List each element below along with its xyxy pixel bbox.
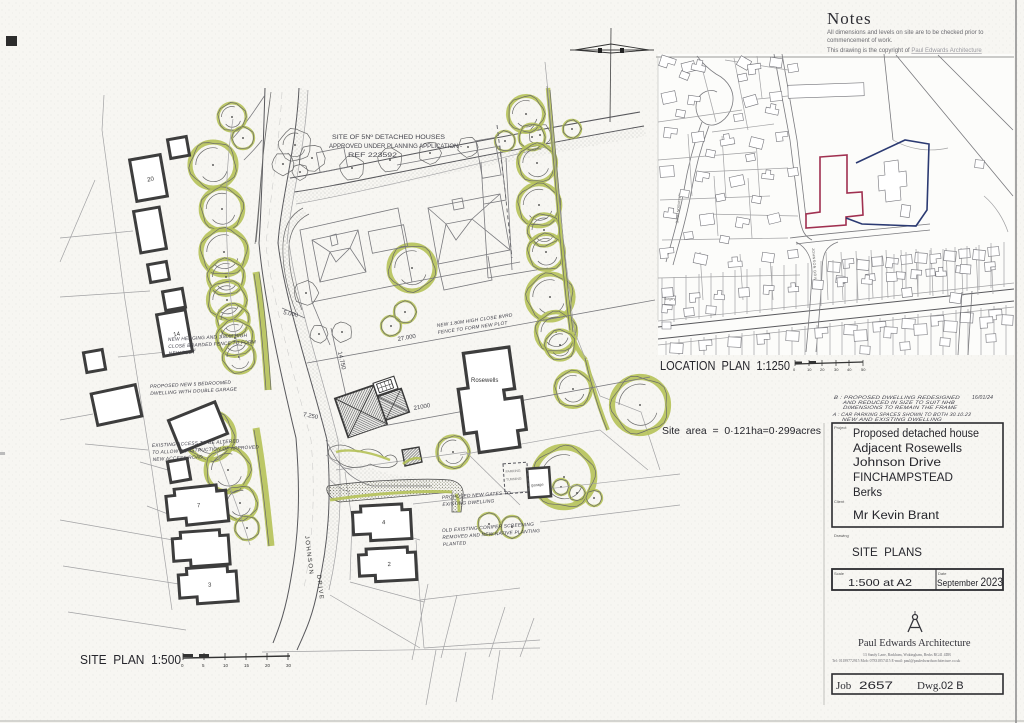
svg-text:SITE PLAN 1:500: SITE PLAN 1:500	[80, 653, 181, 667]
svg-text:This drawing is the copyright: This drawing is the copyright of Paul Ed…	[827, 48, 982, 54]
svg-text:Client: Client	[834, 499, 845, 504]
svg-text:REF 223592: REF 223592	[348, 152, 398, 159]
svg-text:02 B: 02 B	[941, 680, 964, 692]
svg-text:15: 15	[244, 663, 250, 668]
svg-text:APPROVED UNDER PLANNING APP: APPROVED UNDER PLANNING APPLICATION -	[329, 143, 462, 150]
svg-text:30: 30	[286, 663, 292, 668]
svg-text:10: 10	[223, 663, 229, 668]
svg-text:Date: Date	[938, 571, 947, 576]
svg-text:Notes: Notes	[827, 9, 872, 28]
svg-text:16/01/24: 16/01/24	[972, 395, 993, 401]
svg-text:Proposed detached house: Proposed detached house	[853, 428, 979, 440]
svg-text:30: 30	[834, 367, 839, 372]
svg-text:10: 10	[807, 367, 812, 372]
svg-text:Drawing: Drawing	[834, 533, 849, 538]
svg-text:20: 20	[820, 367, 825, 372]
svg-text:40: 40	[847, 367, 852, 372]
svg-text:All dimensions and levels on s: All dimensions and levels on site are to…	[827, 30, 984, 36]
svg-text:SITE PLANS: SITE PLANS	[852, 545, 922, 559]
svg-text:LOCATION PLAN 1:1250: LOCATION PLAN 1:1250	[660, 359, 790, 373]
svg-text:SITE OF 5Nº DETACHED HOUSE: SITE OF 5Nº DETACHED HOUSES	[332, 134, 445, 141]
svg-text:2657: 2657	[859, 680, 893, 692]
svg-text:Job: Job	[836, 680, 852, 692]
svg-text:Project: Project	[834, 425, 847, 430]
svg-text:Adjacent Rosewells: Adjacent Rosewells	[853, 443, 962, 455]
svg-text:1:500 at A2: 1:500 at A2	[848, 577, 912, 589]
svg-text:Johnson Drive: Johnson Drive	[853, 457, 941, 469]
svg-text:Paul Edwards Architecture: Paul Edwards Architecture	[858, 638, 971, 649]
svg-text:NEW AND EXISTING DWELLING: NEW AND EXISTING DWELLING	[841, 417, 942, 423]
svg-text:Dwg.: Dwg.	[917, 680, 941, 692]
svg-text:Site area = 0·121ha=0·299ac: Site area = 0·121ha=0·299acres	[662, 425, 821, 437]
svg-text:Tel: 01189772915 Mob: 078318: Tel: 01189772915 Mob: 07831857415 E-mail…	[832, 659, 960, 663]
svg-text:commencement of work.: commencement of work.	[827, 38, 893, 44]
svg-text:Berks: Berks	[853, 487, 882, 499]
svg-text:FINCHAMPSTEAD: FINCHAMPSTEAD	[853, 472, 953, 484]
svg-text:garage: garage	[531, 482, 545, 488]
svg-text:Surgery: Surgery	[664, 297, 676, 301]
svg-text:September 2023: September 2023	[937, 577, 1003, 589]
svg-text:50: 50	[861, 367, 866, 372]
svg-text:Rosewells: Rosewells	[471, 378, 498, 384]
svg-text:20: 20	[265, 663, 271, 668]
svg-text:Scale: Scale	[834, 571, 845, 576]
svg-text:Mr Kevin Brant: Mr Kevin Brant	[853, 510, 940, 522]
svg-text:DIMENSIONS TO REMAIN THE FRAME: DIMENSIONS TO REMAIN THE FRAME	[843, 405, 959, 411]
